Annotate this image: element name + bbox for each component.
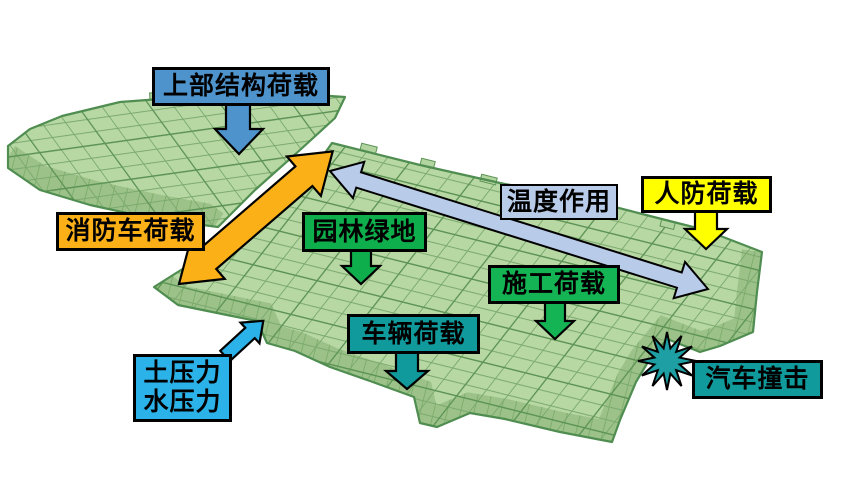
upper-structure-load-label: 上部结构荷载 — [163, 72, 319, 101]
construction-load-label: 施工荷载 — [502, 270, 606, 299]
fire-truck-load-label: 消防车荷载 — [65, 217, 195, 246]
temperature-effect-label: 温度作用 — [507, 188, 611, 217]
construction-load-box: 施工荷载 — [488, 265, 620, 304]
vehicle-load-label: 车辆荷载 — [361, 320, 465, 349]
garden-green-box: 园林绿地 — [302, 212, 427, 252]
temperature-effect-box: 温度作用 — [500, 184, 618, 220]
upper-structure-load-box: 上部结构荷载 — [152, 67, 330, 106]
earth-pressure-label: 土压力 — [143, 359, 221, 388]
civil-defense-load-box: 人防荷载 — [641, 176, 772, 213]
garden-green-label: 园林绿地 — [312, 218, 416, 247]
car-impact-box: 汽车撞击 — [692, 360, 823, 399]
structure-load-diagram: 上部结构荷载 消防车荷载 温度作用 人防荷载 园林绿地 施工荷载 车辆荷载 土压… — [0, 0, 841, 495]
civil-defense-load-label: 人防荷载 — [654, 180, 758, 209]
water-pressure-label: 水压力 — [143, 388, 221, 417]
vehicle-load-box: 车辆荷载 — [347, 314, 480, 354]
earth-water-pressure-box: 土压力 水压力 — [133, 354, 232, 422]
car-impact-label: 汽车撞击 — [705, 365, 809, 394]
fire-truck-load-box: 消防车荷载 — [56, 212, 205, 251]
